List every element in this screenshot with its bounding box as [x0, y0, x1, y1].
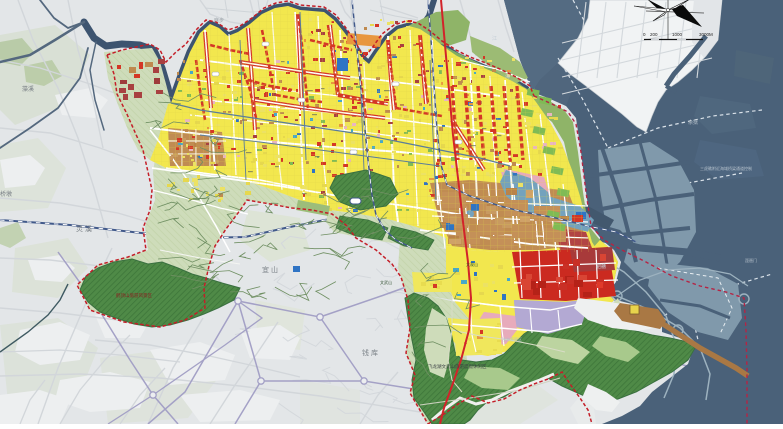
svg-text:海: 海 [505, 73, 510, 80]
svg-text:飞龙湖文武山旅游度假休闲区: 飞龙湖文武山旅游度假休闲区 [428, 363, 487, 370]
svg-text:鹤顶山旅游风景区: 鹤顶山旅游风景区 [116, 292, 152, 299]
svg-text:1000: 1000 [672, 32, 683, 37]
svg-text:宜山: 宜山 [262, 265, 280, 274]
svg-text:舥艚: 舥艚 [596, 263, 606, 270]
svg-text:桥墩: 桥墩 [0, 190, 12, 198]
svg-text:三虎礁附近海域桥梁通道控制: 三虎礁附近海域桥梁通道控制 [700, 165, 752, 171]
svg-text:钱库: 钱库 [362, 348, 380, 357]
svg-text:文武山: 文武山 [380, 279, 392, 285]
svg-text:佘狱: 佘狱 [688, 119, 698, 126]
svg-text:200: 200 [650, 32, 658, 37]
svg-text:藻溪: 藻溪 [22, 85, 34, 93]
svg-text:浅海养殖区: 浅海养殖区 [502, 336, 522, 342]
svg-text:麻步: 麻步 [214, 17, 224, 24]
svg-text:琵琶门: 琵琶门 [745, 257, 757, 263]
svg-text:灵溪: 灵溪 [76, 224, 94, 233]
svg-text:3000M: 3000M [699, 32, 713, 37]
svg-text:大观山: 大观山 [466, 261, 478, 267]
svg-text:江: 江 [492, 35, 497, 42]
